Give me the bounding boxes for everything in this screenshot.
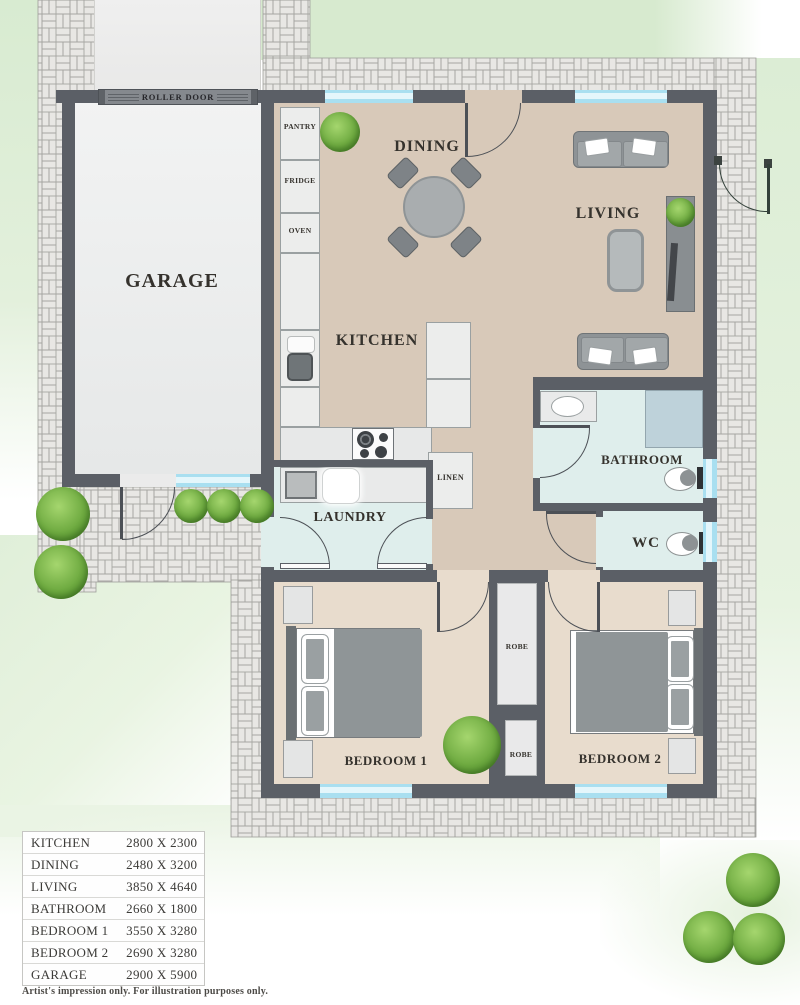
room-size: 2660 X 1800 — [126, 901, 204, 917]
sofa-top — [573, 131, 669, 168]
fridge-cabinet — [280, 160, 320, 213]
kitchen-drainboard — [287, 336, 315, 353]
table-row: KITCHEN 2800 X 2300 — [23, 832, 204, 854]
room-name: KITCHEN — [23, 835, 126, 851]
cooktop-burner-2 — [379, 433, 388, 442]
porch-bush — [174, 489, 208, 523]
house-right-wall — [703, 90, 717, 798]
kitchen-cabinet — [280, 253, 320, 330]
room-size: 2900 X 5900 — [126, 967, 204, 983]
roller-door-label: ROLLER DOOR — [142, 92, 214, 102]
kitchen-label: KITCHEN — [322, 332, 432, 350]
bathroom-top-wall — [533, 377, 703, 390]
garage-top-stub — [56, 90, 98, 103]
bedroom2-door-opening — [548, 570, 600, 582]
dining-plant — [320, 112, 360, 152]
cooktop-burner-4 — [375, 446, 387, 458]
pantry-cabinet — [280, 107, 320, 160]
dimensions-table: KITCHEN 2800 X 2300 DINING 2480 X 3200 L… — [22, 831, 205, 986]
yard-bush — [733, 913, 785, 965]
bedroom1-door-opening — [437, 570, 489, 582]
table-row: DINING 2480 X 3200 — [23, 854, 204, 876]
wc-window — [703, 522, 717, 562]
bed2-pillow — [666, 684, 694, 730]
yard-bush — [726, 853, 780, 907]
bedroom1-label: BEDROOM 1 — [330, 753, 442, 769]
kitchen-cabinet-2 — [280, 387, 320, 427]
tv-plant — [666, 198, 695, 227]
bed1-pillow — [301, 686, 329, 736]
room-name: LIVING — [23, 879, 126, 895]
laundry-right-wall-top — [426, 460, 433, 519]
sofa-bottom — [577, 333, 669, 370]
bed2-pillow — [666, 636, 694, 682]
wc-toilet-seat — [682, 535, 698, 551]
living-label: LIVING — [558, 205, 658, 223]
wc-label: WC — [621, 535, 671, 552]
living-window — [575, 90, 667, 103]
garage-left-wall — [62, 93, 75, 487]
robe-top-label: ROBE — [497, 642, 537, 651]
cooktop-burner-large — [357, 431, 374, 448]
bathroom-door-opening — [533, 428, 540, 478]
bed2-headboard — [694, 628, 703, 736]
kitchen-tall-cabinet-1 — [426, 322, 471, 379]
room-size: 3850 X 4640 — [126, 879, 204, 895]
robe-bottom-label: ROBE — [505, 750, 537, 759]
room-name: BEDROOM 2 — [23, 945, 126, 961]
table-row: LIVING 3850 X 4640 — [23, 876, 204, 898]
bedroom2-label: BEDROOM 2 — [564, 751, 676, 767]
bathroom-window — [703, 459, 717, 498]
room-name: BEDROOM 1 — [23, 923, 126, 939]
kitchen-tall-cabinet-2 — [426, 379, 471, 428]
cooktop-burner-3 — [360, 449, 369, 458]
house-left-wall — [261, 90, 274, 798]
disclaimer-text: Artist's impression only. For illustrati… — [22, 986, 268, 997]
floor-plan-canvas: ROLLER DOOR GARAGE PANTR — [0, 0, 800, 1005]
room-name: BATHROOM — [23, 901, 126, 917]
bed1-bedside-table — [283, 740, 313, 778]
dining-window — [325, 90, 413, 103]
bathroom-label: BATHROOM — [587, 452, 697, 468]
oven-label: OVEN — [280, 226, 320, 235]
bathroom-bottom-wall — [533, 503, 703, 511]
laundry-tub — [322, 468, 360, 504]
washing-machine — [285, 471, 317, 499]
roller-door: ROLLER DOOR — [98, 89, 258, 105]
bathroom-toilet-seat — [680, 470, 696, 486]
room-name: GARAGE — [23, 967, 126, 983]
bed1-headboard — [286, 626, 296, 740]
driveway — [94, 0, 261, 90]
bedroom2-window — [575, 784, 667, 798]
gate-leaf — [767, 164, 770, 214]
robe-bottom-interior — [505, 720, 537, 776]
room-size: 3550 X 3280 — [126, 923, 204, 939]
kitchen-sink — [287, 353, 313, 381]
bedroom1-plant — [443, 716, 501, 774]
bedroom1-window — [320, 784, 412, 798]
bed1-bedside-table — [283, 586, 313, 624]
bed1-pillow — [301, 634, 329, 684]
garage-rear-door-opening — [120, 474, 176, 487]
garage-window — [176, 474, 250, 487]
laundry-entry-leaf — [280, 563, 330, 569]
coffee-table — [607, 229, 644, 292]
bed1-duvet — [331, 629, 422, 737]
bathroom-sink — [551, 396, 584, 417]
porch-bush — [240, 489, 274, 523]
laundry-label: LAUNDRY — [305, 510, 395, 526]
linen-label: LINEN — [428, 473, 473, 482]
bed2-bedside-table — [668, 590, 696, 626]
side-bush — [36, 487, 90, 541]
table-row: BEDROOM 1 3550 X 3280 — [23, 920, 204, 942]
dining-table — [403, 176, 465, 238]
table-row: BATHROOM 2660 X 1800 — [23, 898, 204, 920]
laundry-entry-opening — [261, 517, 274, 567]
kitchen-laundry-divider — [274, 460, 432, 467]
side-bush — [34, 545, 88, 599]
room-size: 2480 X 3200 — [126, 857, 204, 873]
porch-bush — [207, 489, 241, 523]
room-name: DINING — [23, 857, 126, 873]
laundry-hall-leaf — [377, 563, 427, 569]
room-size: 2800 X 2300 — [126, 835, 204, 851]
wc-door-opening — [596, 517, 603, 567]
yard-bush — [683, 911, 735, 963]
front-door-opening — [465, 90, 522, 103]
pantry-label: PANTRY — [280, 122, 320, 131]
shower — [645, 390, 703, 448]
dining-label: DINING — [362, 138, 492, 156]
garage-label: GARAGE — [117, 270, 227, 293]
table-row: BEDROOM 2 2690 X 3280 — [23, 942, 204, 964]
room-size: 2690 X 3280 — [126, 945, 204, 961]
table-row: GARAGE 2900 X 5900 — [23, 964, 204, 985]
bed2-duvet — [572, 632, 668, 732]
fridge-label: FRIDGE — [280, 176, 320, 185]
